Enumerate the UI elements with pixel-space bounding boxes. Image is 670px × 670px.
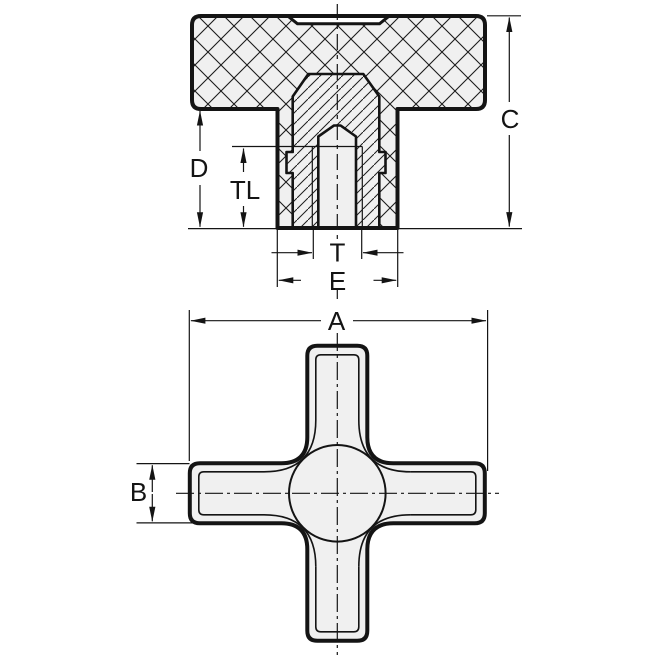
- section-view: C D TL T E: [188, 4, 522, 299]
- drawing-canvas: C D TL T E: [0, 0, 670, 670]
- dim-label-a: A: [328, 306, 346, 336]
- dim-label-e: E: [329, 266, 346, 296]
- dim-label-t: T: [330, 238, 346, 268]
- dim-label-d: D: [190, 153, 209, 183]
- dim-label-tl: TL: [230, 175, 260, 205]
- plan-view: A B: [130, 306, 499, 655]
- cross-knob-technical-drawing: C D TL T E: [0, 0, 670, 670]
- dim-label-b: B: [130, 477, 147, 507]
- dim-label-c: C: [501, 104, 520, 134]
